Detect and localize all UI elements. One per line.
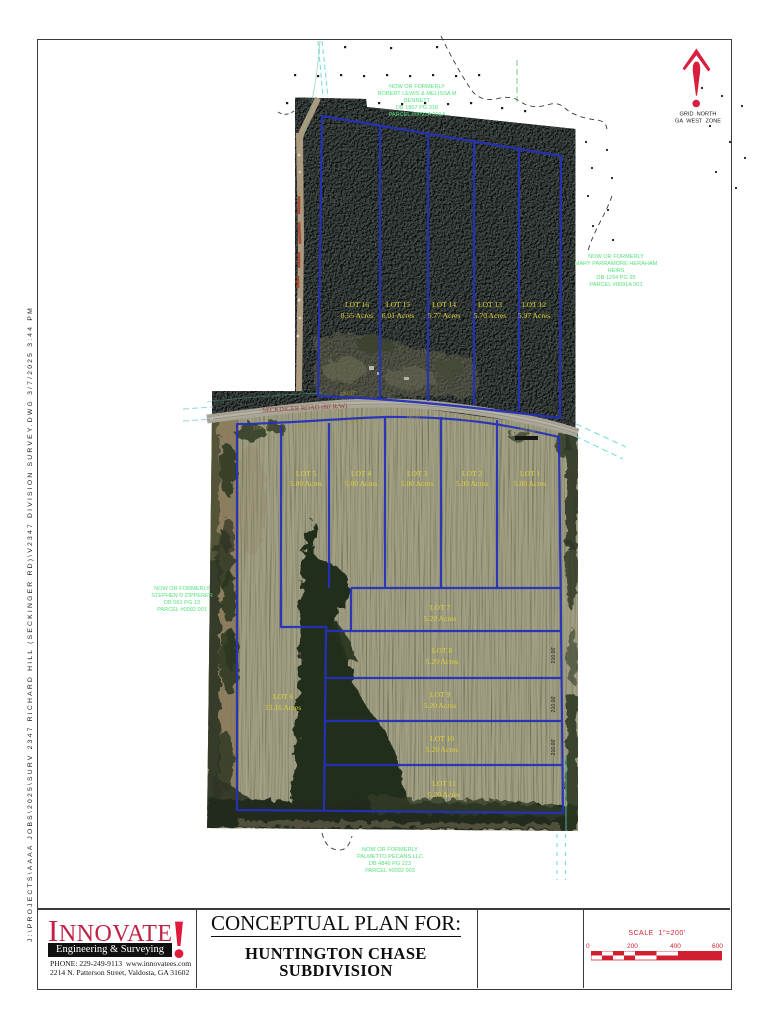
svg-text:NOW OR FORMERLY: NOW OR FORMERLY: [362, 847, 418, 853]
svg-text:LOT 11: LOT 11: [432, 779, 456, 788]
svg-text:MARY PARRAMORE HERAHAM: MARY PARRAMORE HERAHAM: [575, 261, 658, 267]
svg-text:LOT 3: LOT 3: [407, 469, 428, 478]
svg-text:PARCEL #0092 001: PARCEL #0092 001: [157, 607, 207, 613]
svg-text:DB 1294 PG 95: DB 1294 PG 95: [596, 275, 635, 281]
svg-text:5.20 Acres: 5.20 Acres: [426, 745, 459, 754]
svg-text:LOT 15: LOT 15: [386, 300, 410, 309]
svg-text:210.00': 210.00': [551, 696, 557, 713]
svg-text:LOT 5: LOT 5: [296, 469, 317, 478]
svg-text:229.32': 229.32': [297, 423, 313, 430]
svg-text:PALMETTO PECANS LLC: PALMETTO PECANS LLC: [357, 854, 423, 860]
svg-text:HEIRS: HEIRS: [607, 268, 624, 274]
svg-text:262.87': 262.87': [406, 414, 422, 421]
svg-text:NOW OR FORMERLY: NOW OR FORMERLY: [588, 254, 644, 260]
svg-text:220.97': 220.97': [340, 390, 356, 397]
svg-text:NOW OR FORMERLY: NOW OR FORMERLY: [389, 84, 445, 90]
svg-text:210.00': 210.00': [551, 739, 557, 756]
svg-text:5.20 Acres: 5.20 Acres: [424, 614, 457, 623]
svg-text:5.77 Acres: 5.77 Acres: [428, 311, 461, 320]
svg-text:5.70 Acres: 5.70 Acres: [474, 311, 507, 320]
svg-text:GRID NORTH: GRID NORTH: [680, 112, 717, 118]
svg-text:5.00 Acres: 5.00 Acres: [456, 479, 489, 488]
svg-text:DB 1807 PG 318: DB 1807 PG 318: [396, 105, 438, 111]
svg-text:ROBERT LEWIS & MELISSA M: ROBERT LEWIS & MELISSA M: [377, 91, 456, 97]
svg-text:269.79': 269.79': [348, 418, 364, 425]
svg-text:LOT 16: LOT 16: [345, 300, 369, 309]
svg-text:LOT 10: LOT 10: [430, 734, 454, 743]
svg-text:PARCEL #0092 003: PARCEL #0092 003: [365, 868, 415, 874]
svg-text:GA WEST ZONE: GA WEST ZONE: [675, 119, 721, 125]
svg-text:LOT 9: LOT 9: [430, 690, 451, 699]
svg-text:LOT 12: LOT 12: [522, 300, 546, 309]
svg-text:5.00 Acres: 5.00 Acres: [401, 479, 434, 488]
svg-text:LOT 1: LOT 1: [520, 469, 541, 478]
svg-text:LOT 7: LOT 7: [430, 603, 451, 612]
svg-text:LOT 6: LOT 6: [273, 692, 294, 701]
svg-text:LOT 8: LOT 8: [432, 646, 453, 655]
svg-text:215.66': 215.66': [253, 424, 269, 431]
svg-text:210.00': 210.00': [551, 647, 557, 664]
svg-text:DB 4846 PG 223: DB 4846 PG 223: [369, 861, 411, 867]
svg-text:LOT 14: LOT 14: [432, 300, 456, 309]
svg-text:6.01 Acres: 6.01 Acres: [382, 311, 415, 320]
svg-text:BENNETT: BENNETT: [404, 98, 431, 104]
svg-text:LOT 13: LOT 13: [478, 300, 502, 309]
svg-text:LOT 4: LOT 4: [351, 469, 372, 478]
svg-text:13.16 Acres: 13.16 Acres: [265, 703, 301, 712]
svg-text:NOW OR FORMERLY: NOW OR FORMERLY: [154, 586, 210, 592]
svg-text:PARCEL #0091A 001: PARCEL #0091A 001: [589, 282, 642, 288]
svg-text:5.00 Acres: 5.00 Acres: [290, 479, 323, 488]
svg-text:STEPHEN D ZIPPERER: STEPHEN D ZIPPERER: [151, 593, 213, 599]
svg-text:DB 561 PG 13: DB 561 PG 13: [164, 600, 200, 606]
svg-text:263.48': 263.48': [462, 415, 478, 422]
svg-text:8.55 Acres: 8.55 Acres: [341, 311, 374, 320]
svg-text:5.00 Acres: 5.00 Acres: [345, 479, 378, 488]
svg-text:LOT 2: LOT 2: [462, 469, 483, 478]
svg-text:5.20 Acres: 5.20 Acres: [426, 657, 459, 666]
svg-text:5.20 Acres: 5.20 Acres: [424, 701, 457, 710]
svg-text:5.97 Acres: 5.97 Acres: [518, 311, 551, 320]
svg-text:5.00 Acres: 5.00 Acres: [514, 479, 547, 488]
svg-text:5.20 Acres: 5.20 Acres: [428, 790, 461, 799]
svg-text:PARCEL #0091A 001A: PARCEL #0091A 001A: [389, 112, 446, 118]
